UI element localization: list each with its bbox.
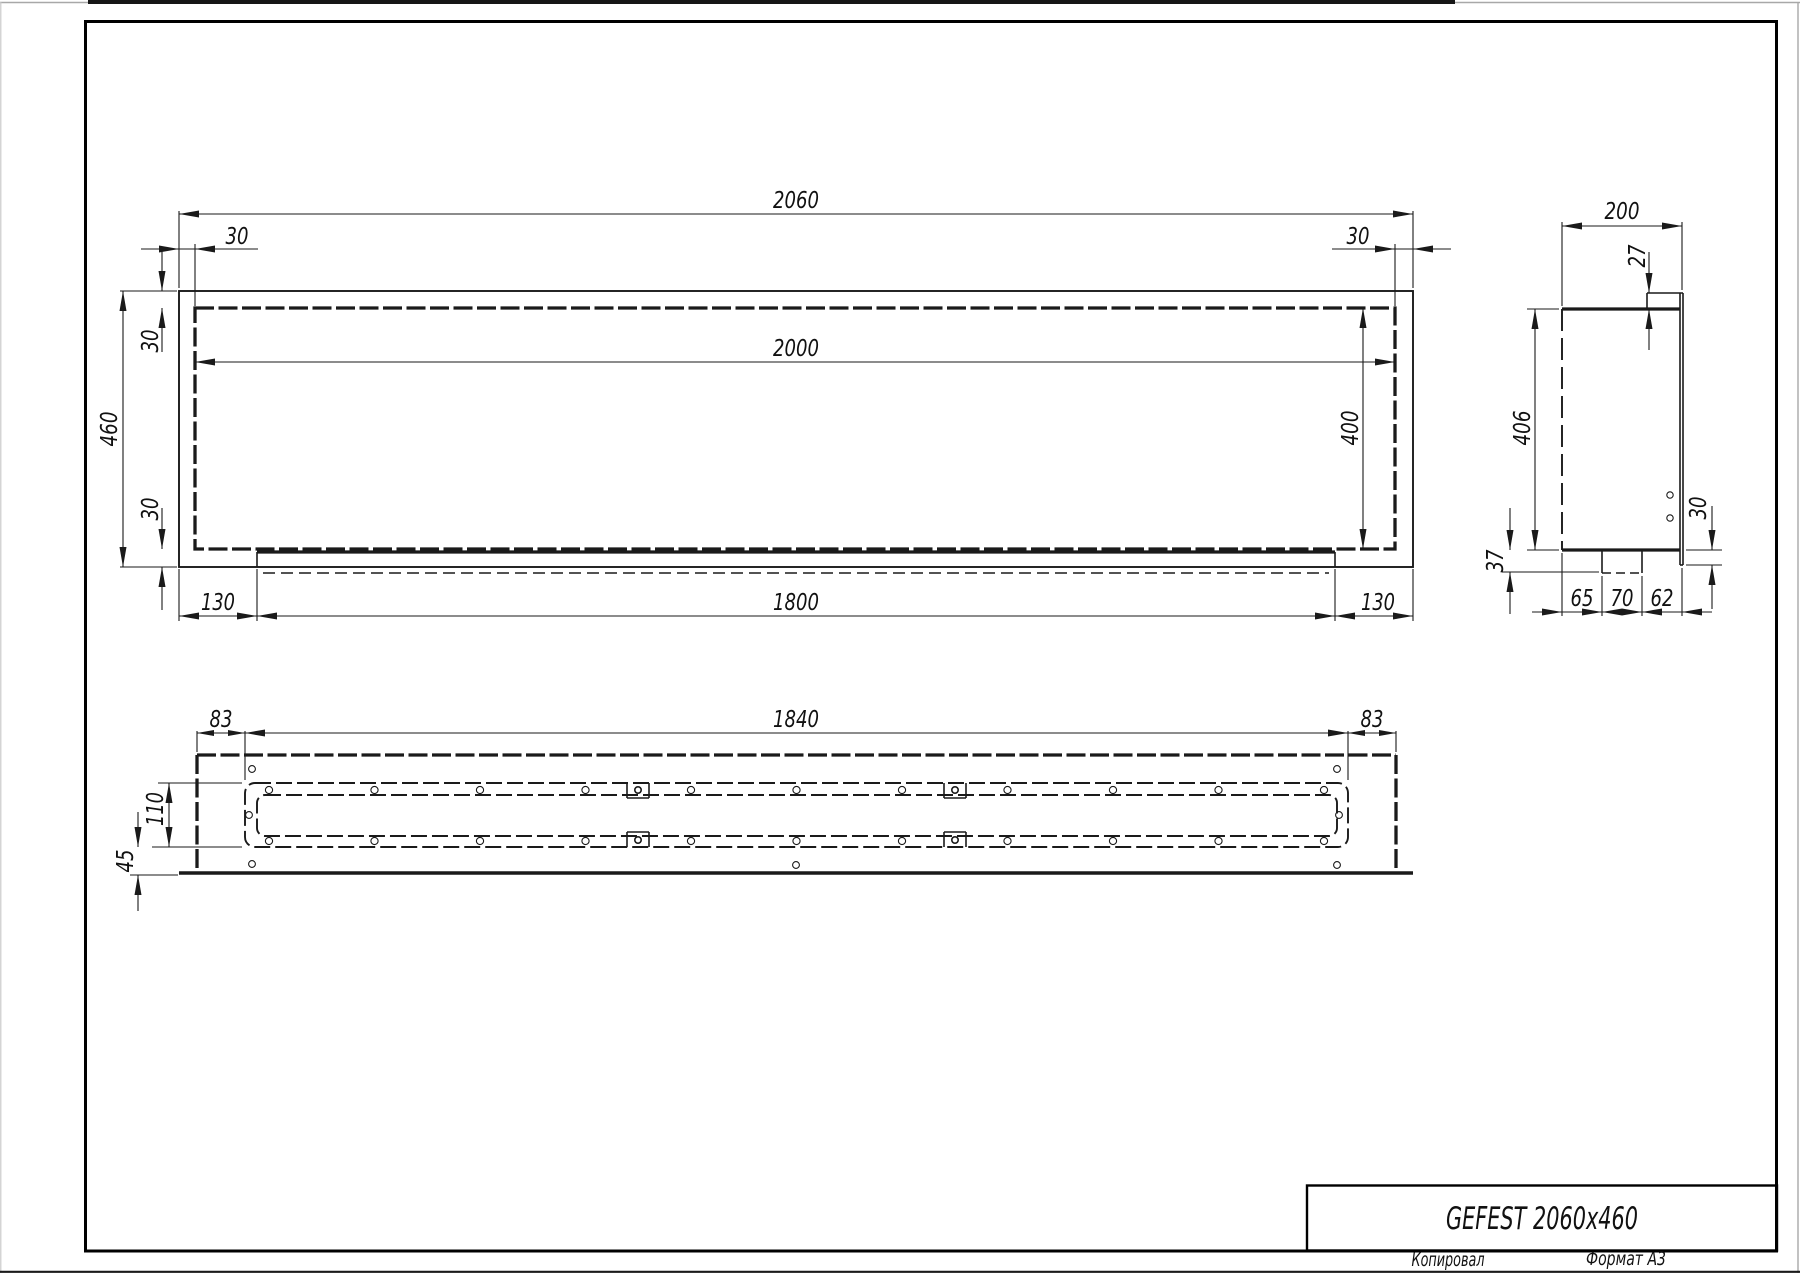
top-burner-slot-inner [257, 795, 1337, 836]
dim-front-bottom-chain: 130 1800 130 [179, 569, 1413, 621]
svg-text:2060: 2060 [773, 188, 819, 214]
svg-text:406: 406 [1510, 411, 1536, 446]
sheet-frame [86, 22, 1777, 1252]
dim-front-opening-width: 2000 [195, 336, 1395, 366]
svg-text:460: 460 [97, 412, 123, 447]
dim-side-depth: 200 [1562, 199, 1682, 306]
side-hole-lower [1667, 515, 1673, 521]
top-plate-holes [246, 766, 1343, 869]
top-view: 83 1840 83 110 45 [113, 707, 1413, 911]
dim-front-opening-height: 400 [1338, 308, 1367, 549]
svg-text:62: 62 [1651, 586, 1674, 612]
svg-text:130: 130 [1361, 590, 1395, 616]
dim-side-top-flange: 27 [1625, 244, 1653, 350]
svg-text:83: 83 [210, 707, 233, 733]
svg-text:30: 30 [138, 498, 164, 521]
svg-text:1840: 1840 [773, 707, 819, 733]
dim-front-overall-height: 460 [97, 291, 177, 567]
front-outer-frame [179, 291, 1413, 567]
dim-side-bottom-chain: 65 70 62 [1532, 553, 1712, 616]
svg-text:30: 30 [1686, 497, 1712, 520]
svg-text:30: 30 [1347, 224, 1370, 250]
dim-top-chain: 83 1840 83 [197, 707, 1396, 780]
svg-text:110: 110 [143, 792, 169, 826]
svg-text:400: 400 [1338, 411, 1364, 446]
svg-text:45: 45 [113, 850, 139, 873]
title-block: GEFEST 2060x460 [1307, 1186, 1777, 1251]
dim-side-body-height: 406 [1510, 309, 1559, 550]
svg-text:27: 27 [1625, 244, 1651, 267]
footer-copied-label: Копировал [1412, 1249, 1485, 1271]
dim-side-front-lip: 30 [1686, 497, 1722, 610]
svg-text:30: 30 [226, 224, 249, 250]
drawing-canvas: 2060 30 30 2000 [0, 0, 1800, 1273]
dim-front-frame-left-upper: 30 [138, 250, 166, 353]
side-hole-upper [1667, 492, 1673, 498]
dim-front-frame-left-lower: 30 [138, 498, 166, 611]
side-view: 200 27 406 37 [1483, 199, 1722, 616]
dim-front-frame-top-left: 30 [141, 224, 258, 306]
svg-text:65: 65 [1571, 586, 1594, 612]
drawing-title: GEFEST 2060x460 [1446, 1201, 1638, 1237]
svg-text:130: 130 [201, 590, 235, 616]
front-view: 2060 30 30 2000 [97, 188, 1451, 621]
svg-text:70: 70 [1611, 586, 1634, 612]
dim-top-slot-width: 110 [143, 783, 242, 847]
svg-text:2000: 2000 [773, 336, 819, 362]
svg-text:30: 30 [138, 330, 164, 353]
footer-format-label: Формат А3 [1586, 1248, 1666, 1270]
svg-text:1800: 1800 [773, 590, 819, 616]
dim-front-frame-top-right: 30 [1332, 224, 1451, 306]
svg-text:200: 200 [1605, 199, 1640, 225]
paper-edges [0, 0, 1800, 1273]
svg-text:83: 83 [1361, 707, 1384, 733]
svg-text:37: 37 [1483, 549, 1509, 572]
scan-edge-strip [88, 0, 1455, 4]
drawing-sheet: 2060 30 30 2000 [0, 0, 1800, 1273]
dim-front-overall-width: 2060 [179, 188, 1413, 288]
